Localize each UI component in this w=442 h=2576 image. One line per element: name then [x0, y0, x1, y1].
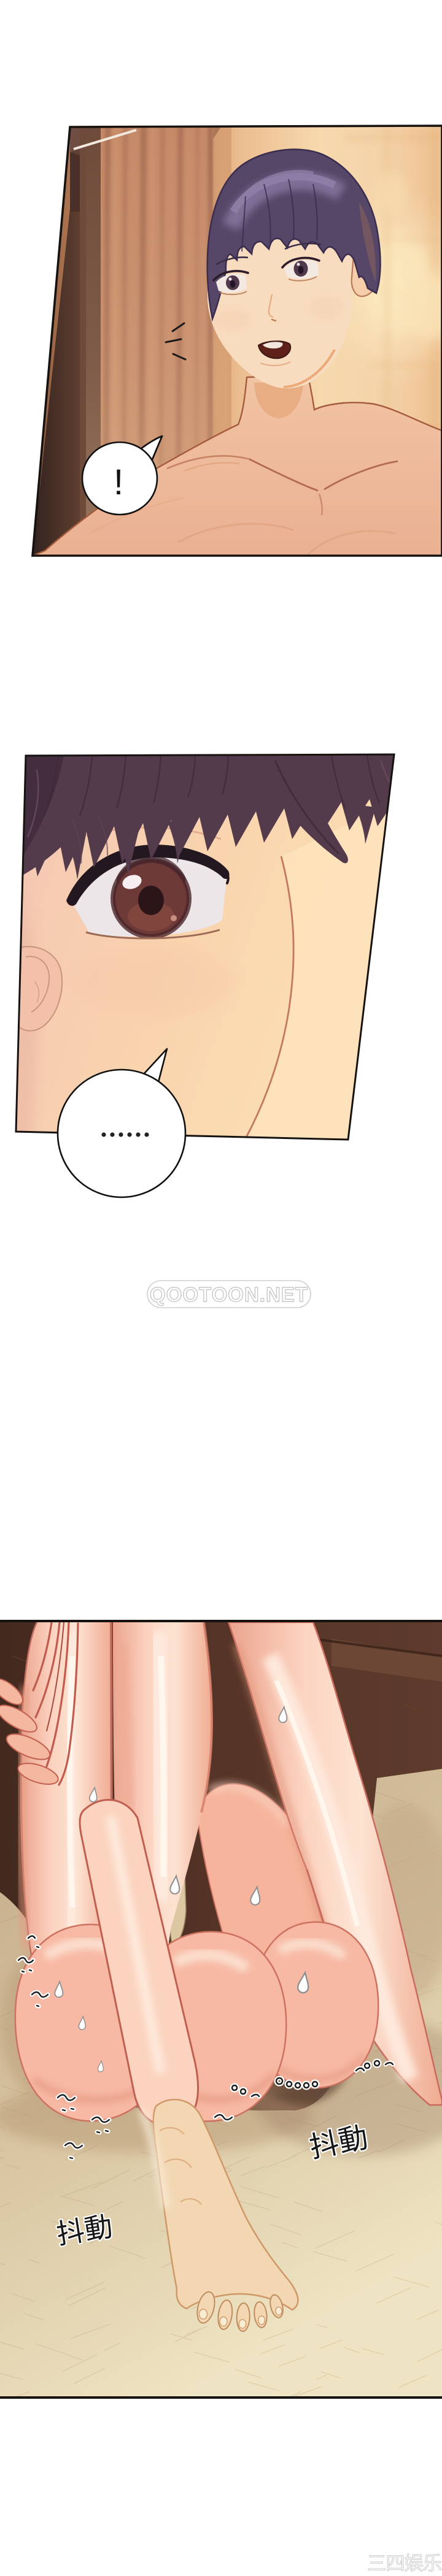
svg-text:!: !	[114, 462, 123, 502]
svg-text:QOOTOON.NET: QOOTOON.NET	[150, 1283, 308, 1306]
